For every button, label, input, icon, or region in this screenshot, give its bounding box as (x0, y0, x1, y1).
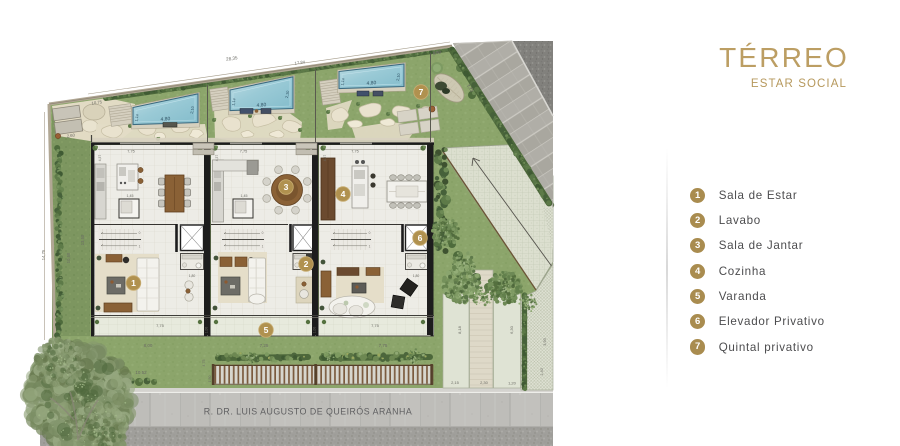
svg-text:7,75: 7,75 (351, 150, 358, 154)
svg-text:4,80: 4,80 (160, 116, 170, 123)
svg-text:2: 2 (304, 259, 309, 269)
svg-text:4: 4 (341, 189, 346, 199)
svg-text:5: 5 (264, 325, 269, 335)
svg-text:4,37: 4,37 (215, 155, 219, 162)
svg-text:0: 0 (369, 231, 371, 235)
svg-text:8,18: 8,18 (457, 325, 462, 334)
svg-text:10,52: 10,52 (135, 370, 147, 375)
svg-text:6: 6 (418, 233, 423, 243)
svg-text:6,30: 6,30 (509, 325, 514, 334)
svg-text:7,25: 7,25 (260, 343, 269, 348)
svg-text:1: 1 (262, 245, 264, 249)
svg-text:4,37: 4,37 (323, 155, 327, 162)
svg-text:1,80: 1,80 (413, 274, 420, 278)
svg-text:1,40: 1,40 (540, 368, 544, 375)
svg-text:2,30: 2,30 (480, 380, 489, 385)
svg-text:4,80: 4,80 (256, 102, 266, 109)
svg-text:3: 3 (284, 182, 289, 192)
svg-text:7,75: 7,75 (127, 150, 134, 154)
svg-text:8,00: 8,00 (144, 343, 153, 348)
svg-text:4,80: 4,80 (366, 80, 376, 87)
svg-text:10,50: 10,50 (66, 252, 71, 263)
svg-text:4,75: 4,75 (202, 360, 206, 367)
svg-text:2,15: 2,15 (451, 380, 460, 385)
svg-text:17,84: 17,84 (294, 59, 306, 66)
svg-text:1,45: 1,45 (241, 194, 248, 198)
svg-text:1,20: 1,20 (508, 381, 517, 386)
svg-text:7,75: 7,75 (156, 323, 165, 328)
svg-text:14,75: 14,75 (41, 249, 46, 260)
svg-text:4,37: 4,37 (98, 155, 102, 162)
svg-text:1,45: 1,45 (127, 194, 134, 198)
svg-text:7,75: 7,75 (371, 323, 380, 328)
svg-text:1,00: 1,00 (313, 327, 317, 334)
svg-text:7,75: 7,75 (379, 343, 388, 348)
svg-text:7,75: 7,75 (240, 150, 247, 154)
svg-text:0: 0 (262, 231, 264, 235)
svg-text:1: 1 (369, 245, 371, 249)
svg-text:1,80: 1,80 (208, 376, 212, 383)
svg-text:1: 1 (131, 278, 136, 288)
svg-text:13,50: 13,50 (80, 234, 85, 245)
svg-text:7: 7 (419, 87, 424, 97)
svg-text:28,35: 28,35 (226, 55, 239, 62)
svg-text:1,80: 1,80 (189, 274, 196, 278)
svg-text:0: 0 (139, 231, 141, 235)
svg-text:R. DR. LUIS AUGUSTO DE QUEIRÓS: R. DR. LUIS AUGUSTO DE QUEIRÓS ARANHA (204, 407, 413, 417)
svg-text:3,90: 3,90 (543, 338, 547, 345)
svg-text:1: 1 (139, 245, 141, 249)
svg-text:1,00: 1,00 (205, 327, 209, 334)
